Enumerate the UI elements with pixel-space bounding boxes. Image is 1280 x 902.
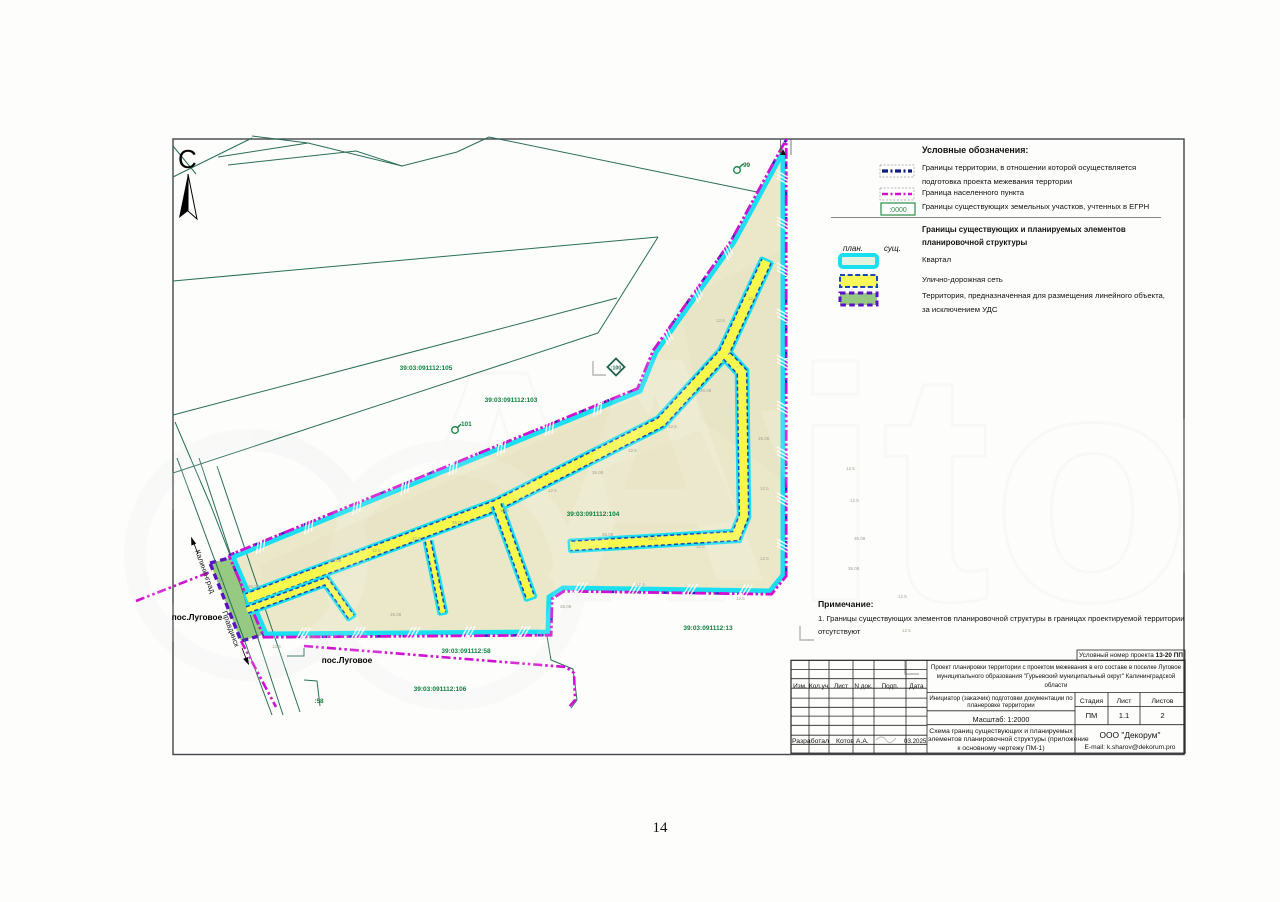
svg-text:12.5: 12.5 bbox=[716, 318, 725, 323]
svg-text:12.5: 12.5 bbox=[760, 486, 769, 491]
svg-text:12.5: 12.5 bbox=[216, 578, 225, 583]
svg-text:12.5: 12.5 bbox=[696, 544, 705, 549]
svg-text:101: 101 bbox=[461, 421, 472, 428]
svg-text::0000: :0000 bbox=[889, 207, 907, 214]
svg-text:39:03:091112:13: 39:03:091112:13 bbox=[683, 625, 733, 632]
svg-text:12.5: 12.5 bbox=[760, 556, 769, 561]
svg-text:Avito: Avito bbox=[540, 290, 1280, 648]
svg-text:36.08: 36.08 bbox=[330, 558, 342, 563]
svg-text:99: 99 bbox=[743, 162, 751, 169]
svg-text:12.5: 12.5 bbox=[500, 508, 509, 513]
svg-text:36.08: 36.08 bbox=[758, 436, 770, 441]
svg-text:12.5: 12.5 bbox=[548, 488, 557, 493]
svg-text:пос.Луговое: пос.Луговое bbox=[322, 655, 373, 665]
svg-text:39:03:091112:106: 39:03:091112:106 bbox=[414, 686, 467, 693]
svg-text:36.08: 36.08 bbox=[854, 536, 866, 541]
svg-text:12.5: 12.5 bbox=[648, 536, 657, 541]
svg-text:36.08: 36.08 bbox=[602, 532, 614, 537]
svg-text:12.5: 12.5 bbox=[846, 466, 855, 471]
svg-text:12.5: 12.5 bbox=[306, 634, 315, 639]
svg-text:12.5: 12.5 bbox=[272, 644, 281, 649]
svg-text:39:03:091112:104: 39:03:091112:104 bbox=[567, 511, 620, 518]
svg-text:36.08: 36.08 bbox=[592, 470, 604, 475]
svg-text:12.5: 12.5 bbox=[412, 536, 421, 541]
svg-text:36.08: 36.08 bbox=[848, 566, 860, 571]
svg-text:36.08: 36.08 bbox=[248, 584, 260, 589]
svg-text:39:03:091112:58: 39:03:091112:58 bbox=[441, 648, 491, 655]
svg-text:12.5: 12.5 bbox=[736, 596, 745, 601]
svg-text:39:03:091112:105: 39:03:091112:105 bbox=[400, 365, 453, 372]
svg-text:36.08: 36.08 bbox=[700, 388, 712, 393]
svg-text:12.5: 12.5 bbox=[668, 424, 677, 429]
svg-text:36.08: 36.08 bbox=[390, 612, 402, 617]
svg-text::100: :100 bbox=[611, 366, 621, 372]
svg-text:С: С bbox=[178, 144, 197, 174]
svg-text:36.08: 36.08 bbox=[560, 604, 572, 609]
svg-text:12.5: 12.5 bbox=[748, 296, 757, 301]
svg-text:12.5: 12.5 bbox=[850, 498, 859, 503]
svg-text:пос.Луговое: пос.Луговое bbox=[172, 612, 223, 622]
svg-text:12.5: 12.5 bbox=[636, 582, 645, 587]
svg-text:12.5: 12.5 bbox=[372, 548, 381, 553]
svg-text:12.5: 12.5 bbox=[628, 448, 637, 453]
svg-text:39:03:091112:103: 39:03:091112:103 bbox=[485, 397, 538, 404]
svg-text::58: :58 bbox=[314, 698, 324, 705]
svg-text:36.08: 36.08 bbox=[452, 520, 464, 525]
